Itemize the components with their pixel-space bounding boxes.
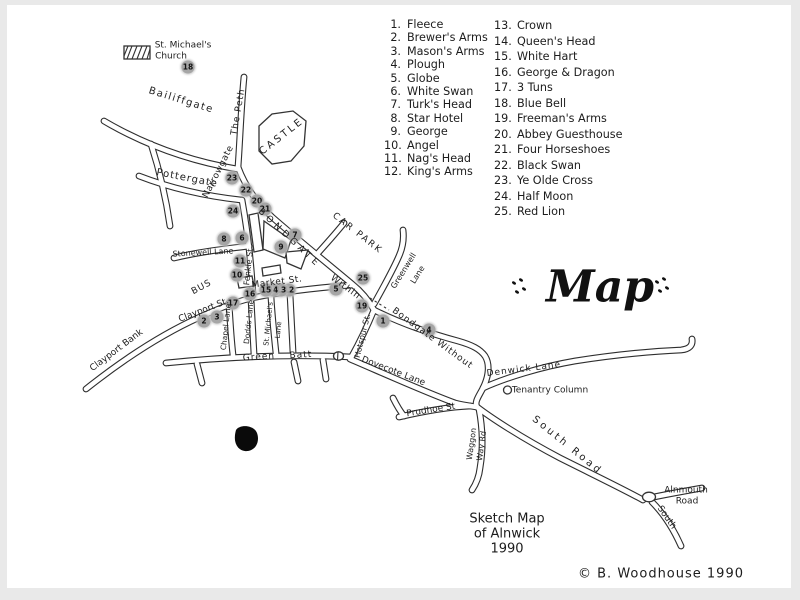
legend-number: 9. bbox=[384, 125, 401, 138]
sketch-map-page: 1234567891011121314151617181920212223242… bbox=[0, 0, 800, 600]
green-batt-label-1: Green bbox=[243, 352, 276, 363]
legend-name: Queen's Head bbox=[517, 35, 595, 48]
legend-name: Freeman's Arms bbox=[517, 112, 607, 125]
legend-entry-16: 16.George & Dragon bbox=[494, 66, 623, 82]
the-peth-label: The Peth bbox=[230, 88, 247, 136]
legend-number: 11. bbox=[384, 152, 401, 165]
legend-name: King's Arms bbox=[407, 165, 473, 178]
legend-entry-7: 7.Turk's Head bbox=[384, 98, 488, 111]
bondgate-within-label: Within bbox=[328, 274, 361, 302]
legend-number: 4. bbox=[384, 58, 401, 71]
clayport-bank-label: Clayport Bank bbox=[89, 328, 145, 373]
legend-number: 10. bbox=[384, 139, 401, 152]
legend-entry-21: 21.Four Horseshoes bbox=[494, 143, 623, 159]
dovecote-lane-label: Dovecote Lane bbox=[360, 356, 426, 389]
legend-name: Blue Bell bbox=[517, 97, 566, 110]
greenwell-lane-label-2: Lane bbox=[409, 265, 426, 286]
legend-name: George & Dragon bbox=[517, 66, 615, 79]
legend-number: 1. bbox=[384, 18, 401, 31]
legend-number: 6. bbox=[384, 85, 401, 98]
legend-name: Crown bbox=[517, 19, 552, 32]
legend-number: 16. bbox=[494, 66, 511, 79]
legend-entry-22: 22.Black Swan bbox=[494, 159, 623, 175]
legend-entry-4: 4.Plough bbox=[384, 58, 488, 71]
legend-number: 21. bbox=[494, 143, 511, 156]
legend-number: 18. bbox=[494, 97, 511, 110]
bailiffgate-label: Bailiffgate bbox=[147, 86, 214, 115]
legend-name: Brewer's Arms bbox=[407, 31, 488, 44]
legend-entry-14: 14.Queen's Head bbox=[494, 35, 623, 51]
alnmouth-road-label-1: Alnmouth bbox=[664, 487, 708, 496]
stonewell-lane-label: Stonewell Lane bbox=[172, 247, 233, 258]
bus-label: BUS bbox=[190, 279, 213, 297]
legend-name: Globe bbox=[407, 72, 440, 85]
dodds-lane-label: Dodds Lane bbox=[243, 300, 255, 345]
st-michaels-lane-label-2: Lane bbox=[275, 321, 284, 339]
south-fork-label: South bbox=[655, 505, 677, 532]
legend-entry-3: 3.Mason's Arms bbox=[384, 45, 488, 58]
legend-number: 22. bbox=[494, 159, 511, 172]
legend-entry-9: 9.George bbox=[384, 125, 488, 138]
legend-number: 14. bbox=[494, 35, 511, 48]
legend-name: Fleece bbox=[407, 18, 443, 31]
tenantry-column-label: Tenantry Column bbox=[512, 387, 588, 396]
legend-column-2: 13.Crown14.Queen's Head15.White Hart16.G… bbox=[494, 19, 623, 221]
legend-name: Abbey Guesthouse bbox=[517, 128, 623, 141]
legend-entry-5: 5.Globe bbox=[384, 72, 488, 85]
denwick-lane-label: Denwick Lane bbox=[486, 361, 561, 379]
alnmouth-road-label-2: Road bbox=[676, 498, 699, 507]
legend-column-1: 1.Fleece2.Brewer's Arms3.Mason's Arms4.P… bbox=[384, 18, 488, 179]
legend-entry-24: 24.Half Moon bbox=[494, 190, 623, 206]
legend-number: 7. bbox=[384, 98, 401, 111]
legend-number: 3. bbox=[384, 45, 401, 58]
legend-name: White Swan bbox=[407, 85, 473, 98]
narrowgate-label: Narrowgate bbox=[202, 144, 236, 199]
st-michaels-church-label-2: Church bbox=[155, 53, 187, 62]
legend-entry-11: 11.Nag's Head bbox=[384, 152, 488, 165]
legend-name: Turk's Head bbox=[407, 98, 472, 111]
legend-name: 3 Tuns bbox=[517, 81, 553, 94]
legend-number: 2. bbox=[384, 31, 401, 44]
legend-name: Black Swan bbox=[517, 159, 581, 172]
legend-name: Red Lion bbox=[517, 205, 565, 218]
legend-entry-13: 13.Crown bbox=[494, 19, 623, 35]
legend-name: Star Hotel bbox=[407, 112, 463, 125]
legend-number: 12. bbox=[384, 165, 401, 178]
legend-number: 8. bbox=[384, 112, 401, 125]
bondgate-without-label: Bondgate Without bbox=[390, 307, 474, 372]
legend-name: Angel bbox=[407, 139, 439, 152]
legend-number: 25. bbox=[494, 205, 511, 218]
legend-number: 5. bbox=[384, 72, 401, 85]
bondgate-label: BONDGATE bbox=[256, 208, 322, 271]
legend-entry-19: 19.Freeman's Arms bbox=[494, 112, 623, 128]
caption-sketch-map: Sketch Map bbox=[469, 512, 544, 527]
legend-entry-8: 8.Star Hotel bbox=[384, 112, 488, 125]
legend-entry-17: 17.3 Tuns bbox=[494, 81, 623, 97]
legend-name: Mason's Arms bbox=[407, 45, 485, 58]
legend-entry-20: 20.Abbey Guesthouse bbox=[494, 128, 623, 144]
prudhoe-st-label: Prudhoe St bbox=[406, 403, 456, 420]
green-batt-label-2: Batt bbox=[289, 351, 312, 362]
legend-entry-10: 10.Angel bbox=[384, 139, 488, 152]
st-michaels-lane-label-1: St. Michael's bbox=[263, 302, 275, 347]
legend-number: 23. bbox=[494, 174, 511, 187]
hotspur-st-label: Hotspur St. bbox=[354, 313, 373, 359]
legend-name: Nag's Head bbox=[407, 152, 471, 165]
legend-name: Ye Olde Cross bbox=[517, 174, 593, 187]
legend-entry-15: 15.White Hart bbox=[494, 50, 623, 66]
legend-entry-1: 1.Fleece bbox=[384, 18, 488, 31]
legend-entry-18: 18.Blue Bell bbox=[494, 97, 623, 113]
waggon-way-label-2: Way Rd bbox=[476, 430, 488, 461]
caption-of-alnwick: of Alnwick bbox=[474, 527, 540, 542]
legend-entry-12: 12.King's Arms bbox=[384, 165, 488, 178]
copyright-notice: © B. Woodhouse 1990 bbox=[578, 567, 744, 582]
legend-entry-2: 2.Brewer's Arms bbox=[384, 31, 488, 44]
legend-name: Plough bbox=[407, 58, 445, 71]
car-park-label: CAR PARK bbox=[330, 212, 383, 256]
legend-number: 15. bbox=[494, 50, 511, 63]
caption-year: 1990 bbox=[490, 542, 523, 557]
legend-name: Four Horseshoes bbox=[517, 143, 610, 156]
legend-number: 13. bbox=[494, 19, 511, 32]
legend-entry-23: 23.Ye Olde Cross bbox=[494, 174, 623, 190]
legend-name: Half Moon bbox=[517, 190, 573, 203]
legend-number: 24. bbox=[494, 190, 511, 203]
st-michaels-church-label-1: St. Michael's bbox=[155, 42, 212, 51]
map-title: Map bbox=[546, 262, 654, 313]
market-st-label: Market St. bbox=[251, 275, 303, 290]
legend-number: 19. bbox=[494, 112, 511, 125]
legend-entry-25: 25.Red Lion bbox=[494, 205, 623, 221]
legend-entry-6: 6.White Swan bbox=[384, 85, 488, 98]
south-road-label: South Road bbox=[530, 415, 604, 478]
legend-name: George bbox=[407, 125, 448, 138]
legend-name: White Hart bbox=[517, 50, 577, 63]
castle-label: CASTLE bbox=[258, 117, 306, 158]
legend-number: 20. bbox=[494, 128, 511, 141]
chapel-lane-label: Chapel Lane bbox=[220, 303, 232, 350]
legend-number: 17. bbox=[494, 81, 511, 94]
